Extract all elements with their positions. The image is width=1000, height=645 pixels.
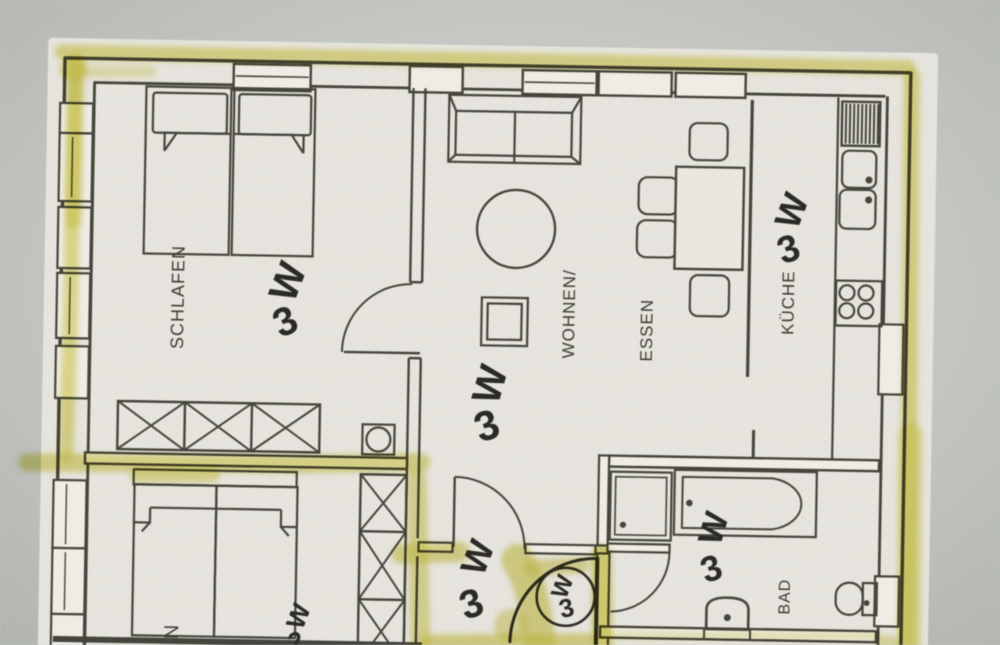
svg-text:SCHLAFEN: SCHLAFEN — [167, 245, 189, 349]
svg-text:ESSEN: ESSEN — [637, 299, 657, 362]
svg-text:BAD: BAD — [776, 579, 794, 615]
svg-text:WOHNEN/: WOHNEN/ — [559, 269, 580, 358]
svg-text:N: N — [161, 625, 183, 640]
svg-text:KÜCHE: KÜCHE — [778, 270, 798, 335]
